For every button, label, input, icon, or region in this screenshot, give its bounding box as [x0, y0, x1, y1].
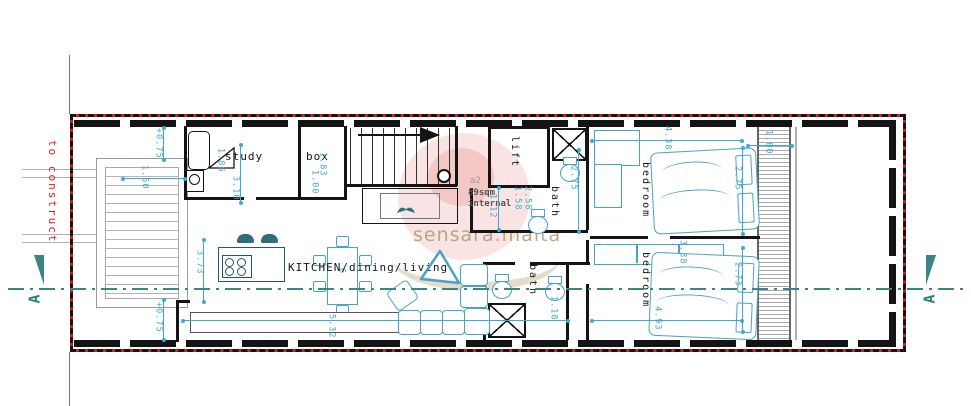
lift-label: lift	[509, 136, 520, 168]
study-tub	[188, 131, 210, 170]
dim-line	[123, 178, 185, 179]
burner	[237, 267, 246, 276]
dim-text: 1.00	[764, 130, 773, 154]
dim-text: 1.12	[488, 194, 497, 218]
sofa-seat	[460, 264, 488, 286]
study-label: study	[225, 150, 263, 163]
wall	[670, 236, 760, 239]
section-letter-right: A	[921, 294, 939, 303]
wardrobe	[594, 164, 622, 208]
unit-code: a2	[470, 176, 481, 186]
bar-stool	[237, 234, 254, 243]
dining-chair	[313, 281, 326, 292]
dim-line	[742, 148, 743, 234]
site-boundary-line-top	[69, 55, 70, 114]
burner	[225, 258, 234, 267]
washer-drum	[189, 174, 200, 185]
dim-text: 4.93	[653, 306, 662, 330]
burner	[237, 258, 246, 267]
toilet-bottom-bath	[492, 281, 512, 299]
wall	[586, 240, 589, 262]
stair-newel-circle	[437, 169, 451, 183]
wall	[470, 230, 588, 233]
wc-top-bath	[528, 216, 548, 234]
wall	[347, 184, 457, 187]
stair-direction-line	[358, 134, 422, 136]
to-construct-label: to construct	[46, 140, 59, 243]
dim-text: 1.58	[513, 186, 522, 210]
top-wall	[74, 120, 896, 127]
dim-text: 2.58	[523, 186, 532, 210]
wall	[566, 265, 569, 340]
dim-text: +0.75	[154, 302, 163, 333]
bedroom-top-label: bedroom	[640, 162, 651, 218]
section-letter-left: A	[26, 294, 44, 303]
dim-text: 3.73	[195, 250, 204, 274]
wall	[344, 126, 347, 200]
rug-triangle	[418, 248, 462, 290]
wall	[590, 236, 648, 239]
wall	[176, 300, 179, 342]
party-wall-hatch	[757, 127, 791, 340]
dining-chair	[336, 236, 349, 247]
dim-line	[592, 320, 742, 321]
wall	[586, 284, 589, 342]
dim-text: +0.75	[154, 128, 163, 159]
dim-line	[742, 248, 743, 332]
dining-chair	[359, 281, 372, 292]
section-arrow-right	[925, 255, 939, 285]
dim-line	[578, 150, 579, 232]
right-wall	[889, 120, 896, 347]
wall	[530, 262, 590, 265]
dim-text: 1.18	[549, 296, 558, 320]
site-boundary-line-bottom	[69, 352, 70, 406]
wardrobe-divider	[636, 244, 638, 263]
fan-symbol	[396, 203, 416, 214]
dim-text: 3.10	[231, 176, 240, 200]
wall	[256, 197, 301, 200]
dim-text: 2.75	[733, 166, 742, 190]
bar-stool	[261, 234, 278, 243]
dim-text: 4.38	[663, 126, 672, 150]
section-line	[8, 288, 963, 290]
dim-text: 5.32	[327, 314, 336, 338]
kitchen-counter	[190, 312, 432, 333]
dim-text: 2.73	[733, 262, 742, 286]
wall	[176, 300, 190, 303]
sofa-seat	[442, 310, 465, 335]
dim-text: 1.86	[216, 148, 225, 172]
terrace-edge-line	[795, 127, 797, 340]
wall	[298, 126, 301, 200]
wall	[483, 262, 515, 265]
wall	[301, 197, 344, 200]
burner	[225, 267, 234, 276]
bottom-wall	[74, 340, 896, 347]
wall	[455, 126, 458, 186]
sofa-seat	[420, 310, 443, 335]
dim-text: 3.38	[678, 240, 687, 264]
dim-line	[498, 188, 499, 230]
section-arrow-left	[31, 255, 45, 285]
sofa-seat	[398, 310, 421, 335]
bath-top-label: bath	[549, 186, 560, 218]
dim-text: 1.50	[140, 165, 149, 189]
bed-bottom	[648, 252, 760, 341]
bedroom-bottom-label: bedroom	[640, 252, 651, 308]
floor-plan-canvas: sensara.malta to construct lift	[0, 0, 971, 406]
dim-line	[183, 320, 568, 321]
bath-bottom-label: bath	[527, 264, 538, 296]
wardrobe	[594, 130, 640, 166]
dining-table	[327, 247, 358, 305]
stair-direction-arrow	[420, 127, 440, 143]
dim-text: 1.00	[310, 170, 319, 194]
bed-top	[650, 147, 760, 234]
dim-text: 2.75	[569, 166, 578, 190]
sofa-corner	[464, 308, 490, 335]
